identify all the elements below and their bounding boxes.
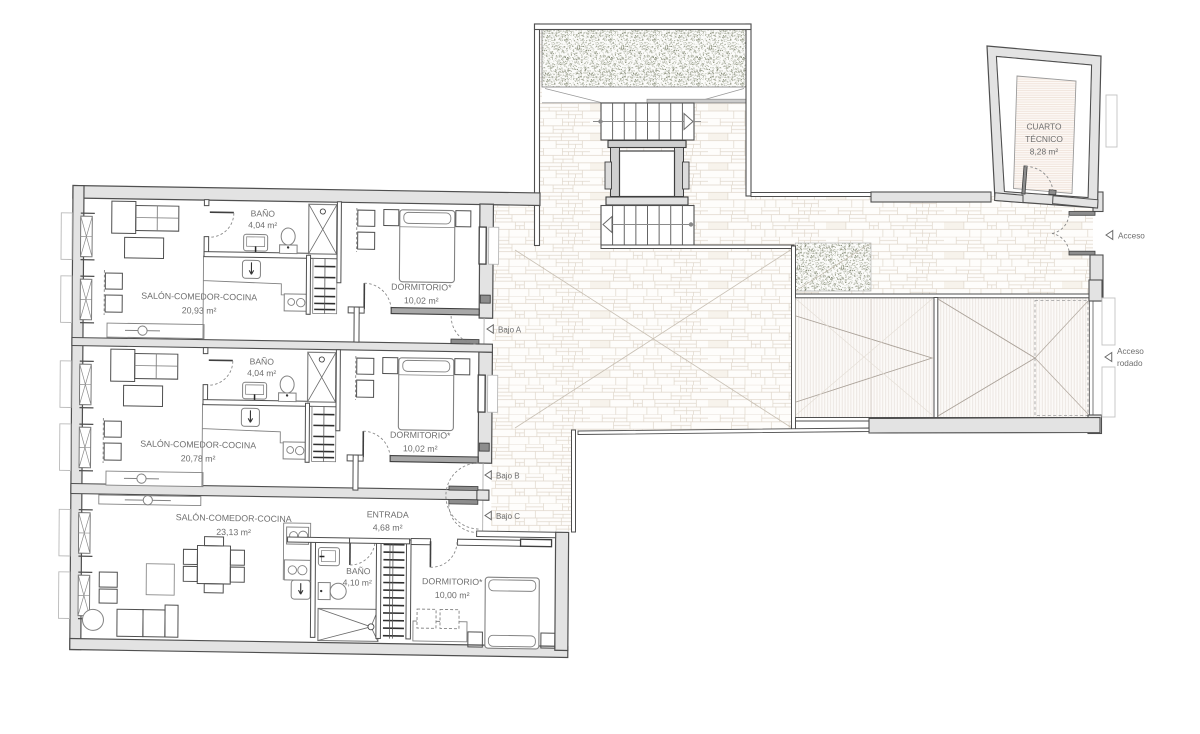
svg-text:BAÑO: BAÑO (251, 208, 276, 218)
svg-text:10,02 m²: 10,02 m² (404, 295, 439, 306)
svg-text:BAÑO: BAÑO (346, 566, 371, 576)
svg-text:SALÓN-COMEDOR-COCINA: SALÓN-COMEDOR-COCINA (176, 512, 292, 524)
svg-text:ENTRADA: ENTRADA (367, 509, 409, 520)
svg-text:20,93 m²: 20,93 m² (182, 305, 217, 316)
svg-text:DORMITORIO*: DORMITORIO* (391, 282, 452, 293)
svg-text:Acceso: Acceso (1118, 232, 1145, 241)
svg-text:DORMITORIO*: DORMITORIO* (422, 576, 483, 587)
svg-text:23,13 m²: 23,13 m² (216, 527, 251, 538)
svg-text:20,78 m²: 20,78 m² (181, 453, 216, 464)
svg-text:SALÓN-COMEDOR-COCINA: SALÓN-COMEDOR-COCINA (140, 439, 256, 451)
svg-text:4,04 m²: 4,04 m² (248, 220, 277, 230)
svg-text:BAÑO: BAÑO (250, 356, 275, 366)
svg-text:rodado: rodado (1117, 359, 1143, 368)
svg-text:4,04 m²: 4,04 m² (247, 368, 276, 378)
svg-text:8,28 m²: 8,28 m² (1030, 147, 1059, 157)
svg-text:Bajo C: Bajo C (496, 512, 520, 521)
svg-text:Bajo B: Bajo B (496, 472, 520, 481)
svg-text:Acceso: Acceso (1117, 347, 1144, 356)
svg-text:Bajo A: Bajo A (498, 326, 522, 335)
svg-text:10,00 m²: 10,00 m² (435, 590, 470, 601)
svg-text:4,10 m²: 4,10 m² (343, 577, 372, 587)
svg-text:10,02 m²: 10,02 m² (403, 443, 438, 454)
svg-text:4,68 m²: 4,68 m² (373, 522, 403, 532)
svg-text:SALÓN-COMEDOR-COCINA: SALÓN-COMEDOR-COCINA (141, 291, 257, 303)
svg-text:TÉCNICO: TÉCNICO (1025, 134, 1063, 144)
svg-text:CUARTO: CUARTO (1026, 122, 1062, 132)
svg-text:DORMITORIO*: DORMITORIO* (390, 430, 451, 441)
